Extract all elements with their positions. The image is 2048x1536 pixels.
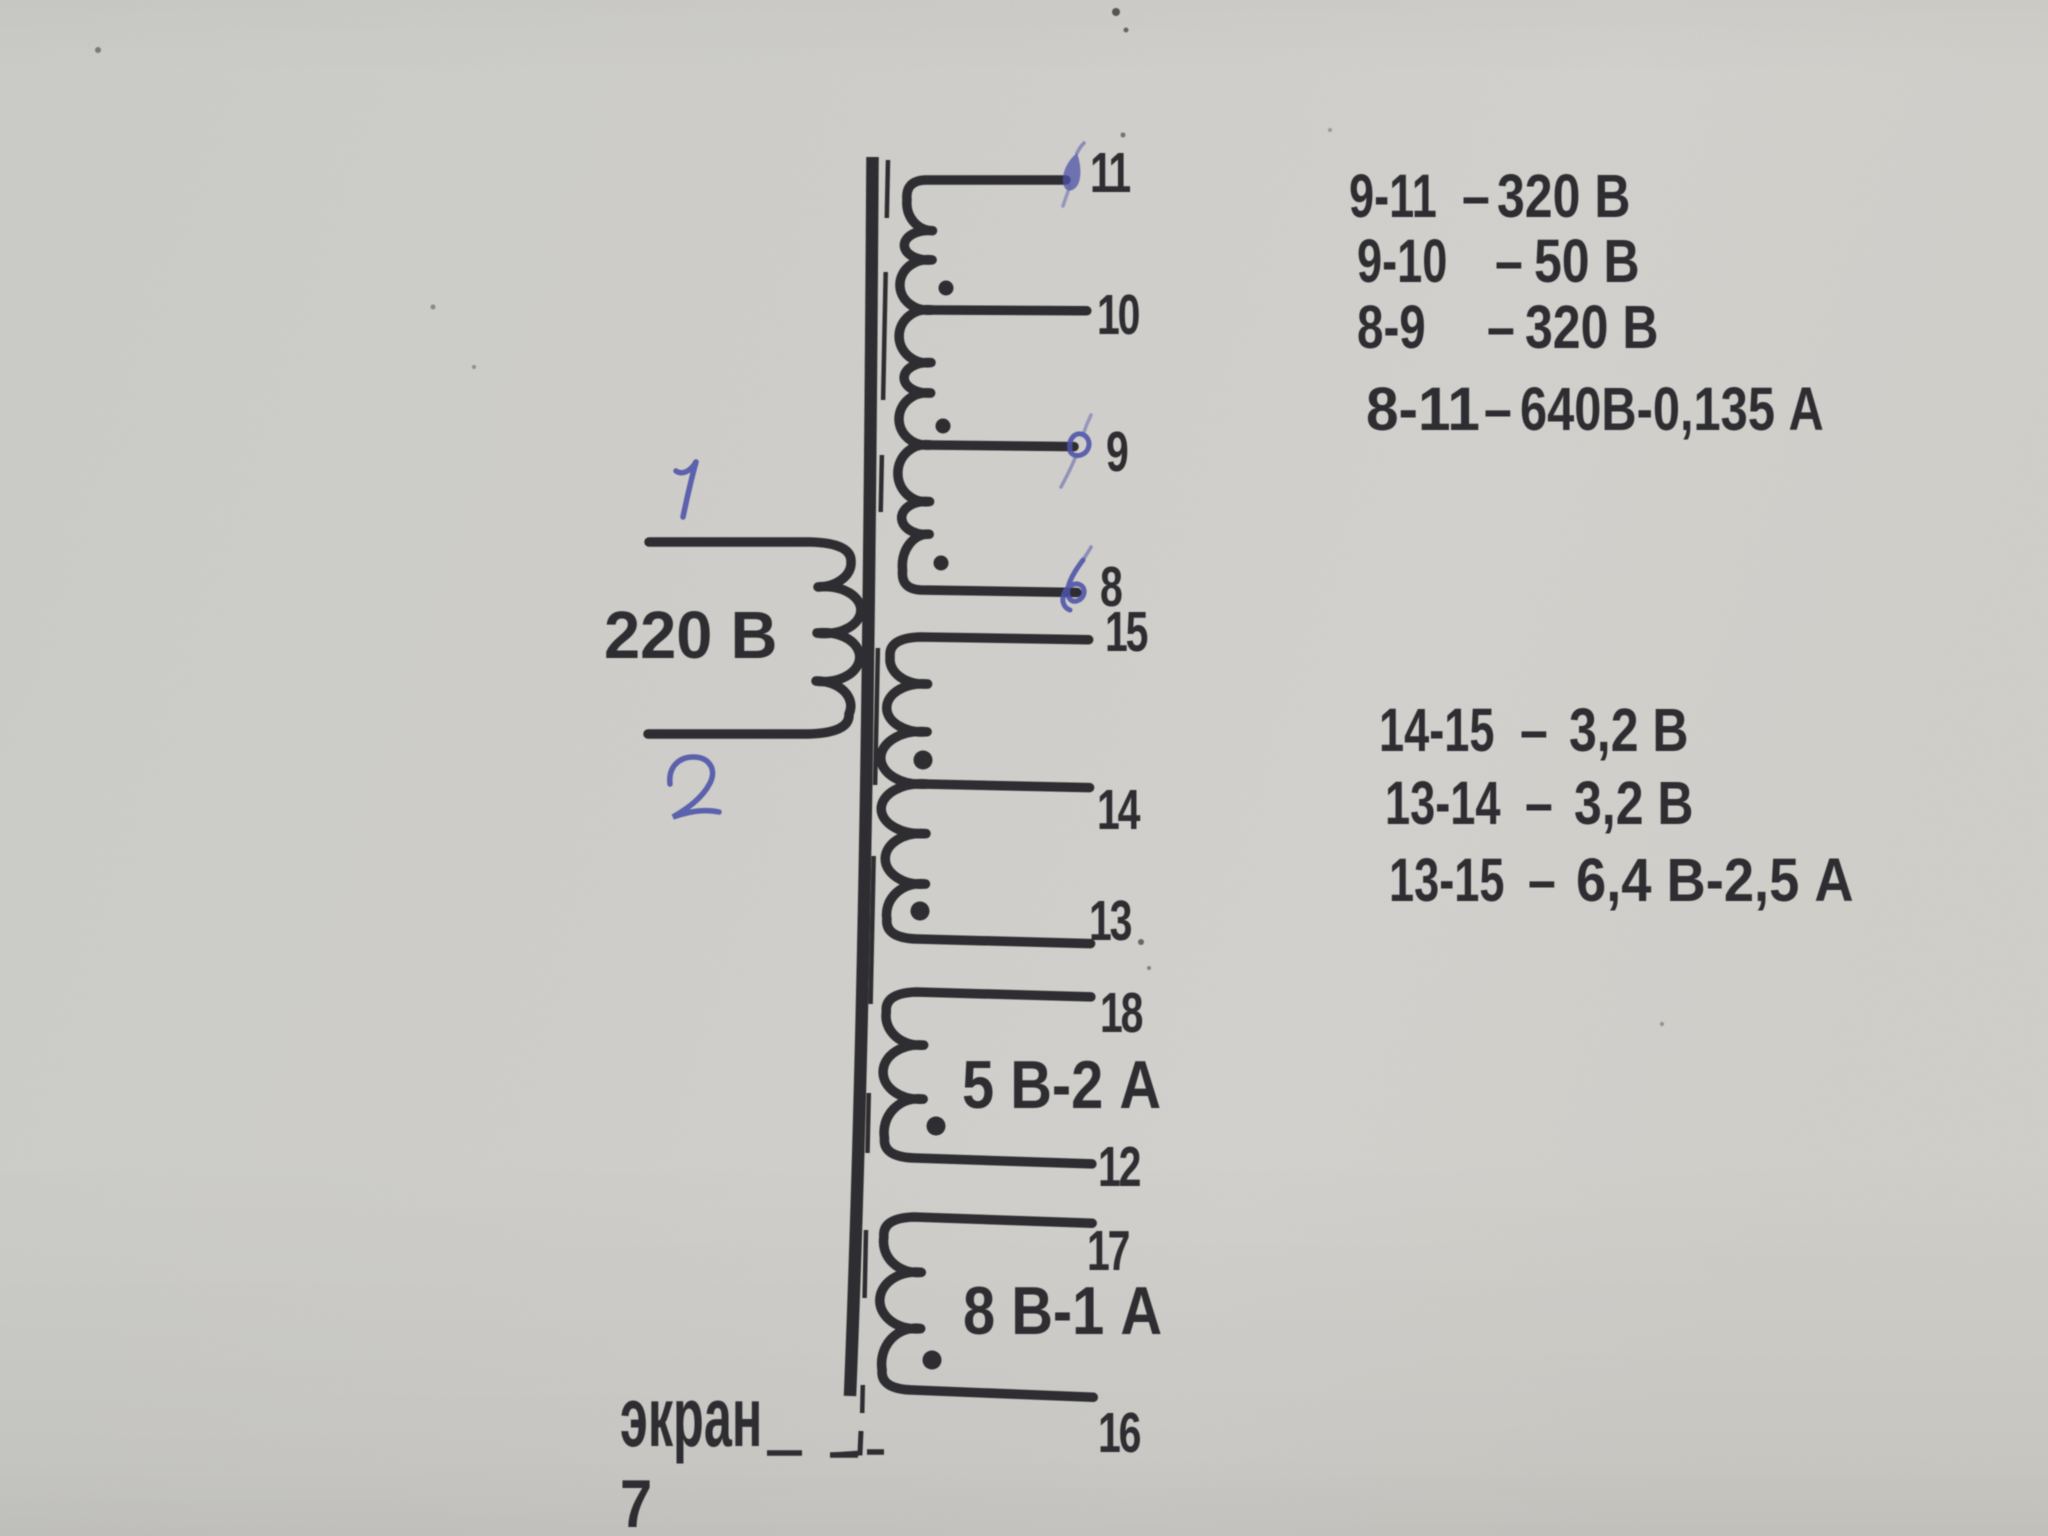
svg-text:9-11: 9-11 <box>1349 162 1437 230</box>
svg-text:3,2 В: 3,2 В <box>1574 769 1694 837</box>
svg-text:11: 11 <box>1090 140 1131 204</box>
svg-text:640В-0,135 А: 640В-0,135 А <box>1520 375 1824 443</box>
svg-text:320 В: 320 В <box>1525 293 1658 361</box>
svg-text:6,4 В-2,5 А: 6,4 В-2,5 А <box>1576 847 1854 915</box>
svg-text:18: 18 <box>1100 980 1143 1044</box>
svg-text:16: 16 <box>1098 1400 1140 1464</box>
svg-text:экран: экран <box>620 1370 762 1465</box>
svg-text:8 В-1 А: 8 В-1 А <box>963 1274 1162 1349</box>
svg-text:3,2 В: 3,2 В <box>1569 696 1689 764</box>
svg-text:–: – <box>1487 293 1515 361</box>
svg-text:14: 14 <box>1097 777 1141 841</box>
svg-text:13: 13 <box>1089 888 1131 952</box>
svg-text:10: 10 <box>1097 282 1139 346</box>
svg-text:9-10: 9-10 <box>1357 227 1447 295</box>
svg-text:8-9: 8-9 <box>1357 292 1426 361</box>
svg-text:5 В-2 А: 5 В-2 А <box>962 1048 1161 1123</box>
svg-text:–: – <box>1520 696 1548 764</box>
svg-text:8-11: 8-11 <box>1366 375 1480 443</box>
svg-text:7: 7 <box>620 1467 652 1536</box>
svg-text:13-15: 13-15 <box>1389 846 1504 914</box>
svg-text:–: – <box>1528 846 1556 914</box>
svg-text:–: – <box>1462 162 1490 230</box>
svg-text:15: 15 <box>1105 599 1148 663</box>
svg-text:50 В: 50 В <box>1534 227 1640 295</box>
svg-text:–: – <box>1495 227 1523 295</box>
svg-text:13-14: 13-14 <box>1385 769 1501 837</box>
svg-text:320 В: 320 В <box>1497 162 1630 230</box>
svg-text:14-15: 14-15 <box>1379 696 1494 764</box>
svg-text:12: 12 <box>1098 1134 1140 1198</box>
svg-text:9: 9 <box>1106 419 1127 483</box>
svg-text:–: – <box>1484 375 1512 443</box>
svg-text:220 В: 220 В <box>604 597 777 672</box>
svg-text:–: – <box>1525 769 1553 837</box>
